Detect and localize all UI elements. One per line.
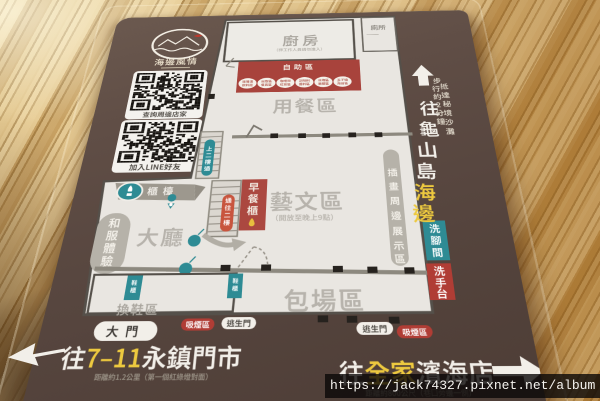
svg-text:插: 插 <box>387 167 398 179</box>
svg-text:展: 展 <box>392 225 404 239</box>
svg-text:間: 間 <box>431 246 444 260</box>
svg-text:用餐區: 用餐區 <box>272 93 338 118</box>
svg-text:樓: 樓 <box>223 220 231 228</box>
svg-text:飲料機: 飲料機 <box>242 82 253 87</box>
svg-text:區: 區 <box>394 253 406 267</box>
svg-text:周: 周 <box>389 195 401 208</box>
svg-text:示: 示 <box>393 240 405 254</box>
svg-text:廁所: 廁所 <box>370 23 387 32</box>
svg-text:台: 台 <box>436 287 449 302</box>
svg-text:畫: 畫 <box>388 181 399 193</box>
svg-text:包場區: 包場區 <box>283 281 367 318</box>
svg-text:櫃: 櫃 <box>231 285 238 294</box>
svg-text:灘: 灘 <box>445 125 456 136</box>
svg-text:邊: 邊 <box>411 199 437 228</box>
svg-text:海苔區: 海苔區 <box>337 81 348 85</box>
svg-text:自助區: 自助區 <box>282 62 315 72</box>
svg-text:（非工作人員請勿進入）: （非工作人員請勿進入） <box>274 47 326 53</box>
svg-text:吸煙區: 吸煙區 <box>185 320 210 331</box>
svg-text:吸煙區: 吸煙區 <box>402 327 428 339</box>
svg-text:紅茶區: 紅茶區 <box>280 82 291 86</box>
svg-text:換鞋區: 換鞋區 <box>115 300 160 319</box>
svg-text:加入LINE好友: 加入LINE好友 <box>128 161 181 172</box>
svg-text:往7–11永鎮門市: 往7–11永鎮門市 <box>57 338 243 376</box>
svg-text:通: 通 <box>203 166 211 173</box>
svg-text:醬料區: 醬料區 <box>299 82 310 86</box>
svg-text:餐具區: 餐具區 <box>261 83 272 87</box>
svg-text:距離約1.2公里（第一個紅綠燈對面）: 距離約1.2公里（第一個紅綠燈對面） <box>93 373 213 384</box>
svg-text:大廳: 大廳 <box>134 222 187 252</box>
svg-text:查詢周邊店家: 查詢周邊店家 <box>142 109 188 119</box>
svg-text:櫃: 櫃 <box>246 204 258 218</box>
svg-text:果醋區: 果醋區 <box>318 82 329 86</box>
svg-text:（開放至晚上9點）: （開放至晚上9點） <box>271 212 339 223</box>
svg-text:海邊風情: 海邊風情 <box>153 56 198 68</box>
svg-text:逃生門: 逃生門 <box>362 324 387 336</box>
svg-text:逃生門: 逃生門 <box>226 318 251 329</box>
